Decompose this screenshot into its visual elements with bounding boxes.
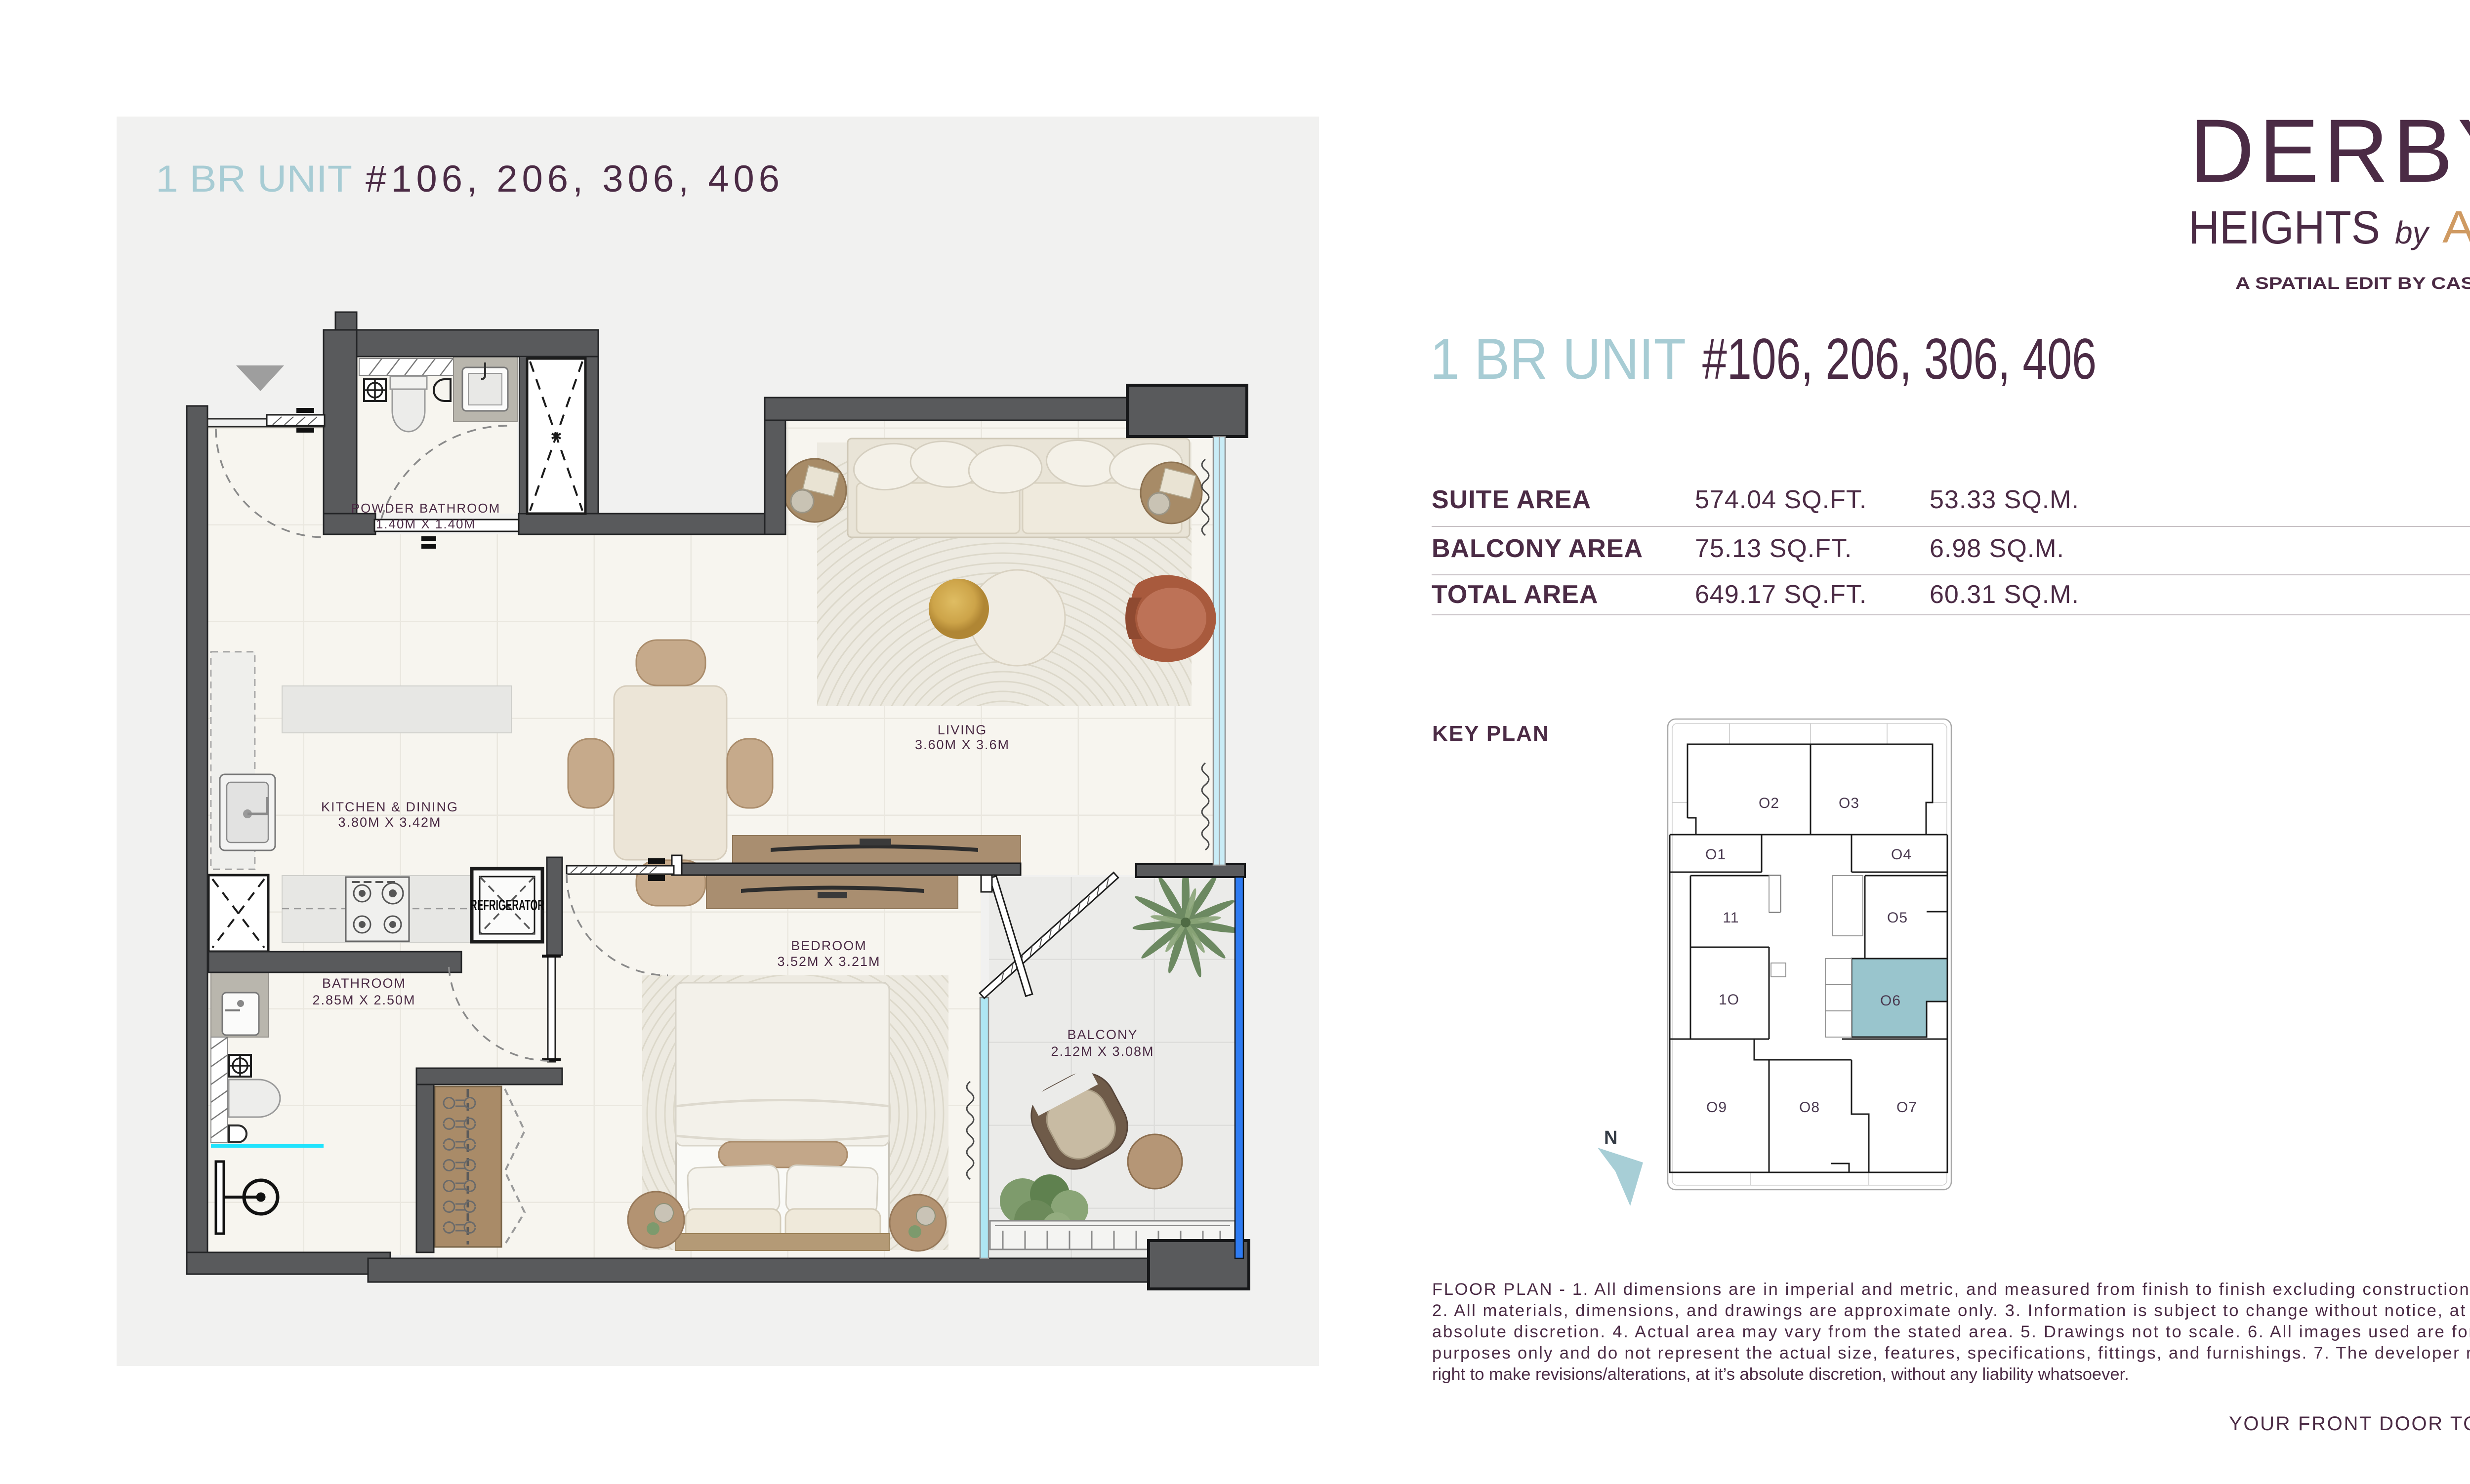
svg-text:53.33 SQ.M.: 53.33 SQ.M. — [1930, 485, 2079, 514]
svg-text:1 BR UNIT: 1 BR UNIT — [1430, 326, 1686, 391]
svg-text:O3: O3 — [1839, 795, 1859, 811]
svg-text:purposes only and do not repre: purposes only and do not represent the a… — [1432, 1344, 2470, 1363]
svg-text:SUITE AREA: SUITE AREA — [1432, 485, 1591, 514]
svg-text:AMIS: AMIS — [2442, 202, 2470, 252]
svg-text:3.60M X 3.6M: 3.60M X 3.6M — [915, 737, 1010, 752]
svg-text:BATHROOM: BATHROOM — [322, 976, 406, 991]
svg-text:BEDROOM: BEDROOM — [791, 938, 867, 953]
svg-text:O8: O8 — [1799, 1099, 1820, 1116]
svg-text:HEIGHTS: HEIGHTS — [2188, 201, 2380, 254]
svg-text:YOUR FRONT DOOR TO THE CITY: YOUR FRONT DOOR TO THE CITY — [2229, 1413, 2470, 1435]
svg-text:BALCONY: BALCONY — [1067, 1027, 1138, 1042]
svg-text:75.13 SQ.FT.: 75.13 SQ.FT. — [1695, 534, 1852, 563]
svg-text:LIVING: LIVING — [938, 722, 988, 737]
svg-text:TOTAL AREA: TOTAL AREA — [1432, 580, 1598, 609]
svg-text:2.85M X 2.50M: 2.85M X 2.50M — [312, 993, 415, 1007]
svg-text:BALCONY AREA: BALCONY AREA — [1432, 534, 1643, 563]
svg-text:3.80M X 3.42M: 3.80M X 3.42M — [338, 815, 441, 830]
svg-text:right to make revisions/altera: right to make revisions/alterations, at … — [1432, 1365, 2129, 1384]
svg-text:#106, 206, 306, 406: #106, 206, 306, 406 — [366, 158, 780, 200]
svg-text:6.98 SQ.M.: 6.98 SQ.M. — [1930, 534, 2064, 563]
svg-text:O9: O9 — [1706, 1099, 1727, 1116]
svg-text:O7: O7 — [1896, 1099, 1917, 1116]
svg-text:DERBY: DERBY — [2189, 100, 2470, 201]
svg-text:574.04 SQ.FT.: 574.04 SQ.FT. — [1695, 485, 1867, 514]
svg-text:2.12M X 3.08M: 2.12M X 3.08M — [1051, 1044, 1154, 1059]
svg-text:1 BR UNIT: 1 BR UNIT — [156, 158, 352, 200]
svg-text:1O: 1O — [1719, 992, 1739, 1008]
svg-text:KEY PLAN: KEY PLAN — [1432, 722, 1550, 746]
svg-text:O1: O1 — [1705, 846, 1726, 863]
svg-text:O6: O6 — [1880, 993, 1901, 1009]
svg-text:1.40M X 1.40M: 1.40M X 1.40M — [376, 517, 476, 531]
svg-text:O5: O5 — [1887, 910, 1908, 926]
svg-text:60.31 SQ.M.: 60.31 SQ.M. — [1930, 580, 2079, 609]
svg-text:O2: O2 — [1759, 795, 1779, 811]
svg-text:KITCHEN & DINING: KITCHEN & DINING — [321, 800, 458, 814]
svg-text:3.52M X 3.21M: 3.52M X 3.21M — [777, 954, 880, 969]
svg-text:A SPATIAL EDIT BY CASAMIA: A SPATIAL EDIT BY CASAMIA — [2235, 274, 2470, 293]
svg-text:POWDER BATHROOM: POWDER BATHROOM — [351, 501, 501, 516]
svg-text:FLOOR PLAN - 1. All dimensions: FLOOR PLAN - 1. All dimensions are in im… — [1432, 1280, 2470, 1299]
svg-text:by: by — [2395, 215, 2430, 250]
svg-text:REFRIGERATOR: REFRIGERATOR — [470, 896, 544, 914]
svg-text:#106, 206, 306, 406: #106, 206, 306, 406 — [1702, 326, 2097, 391]
svg-text:O4: O4 — [1891, 846, 1912, 863]
svg-text:11: 11 — [1723, 910, 1739, 926]
svg-text:649.17 SQ.FT.: 649.17 SQ.FT. — [1695, 580, 1867, 609]
svg-text:N: N — [1604, 1127, 1617, 1148]
